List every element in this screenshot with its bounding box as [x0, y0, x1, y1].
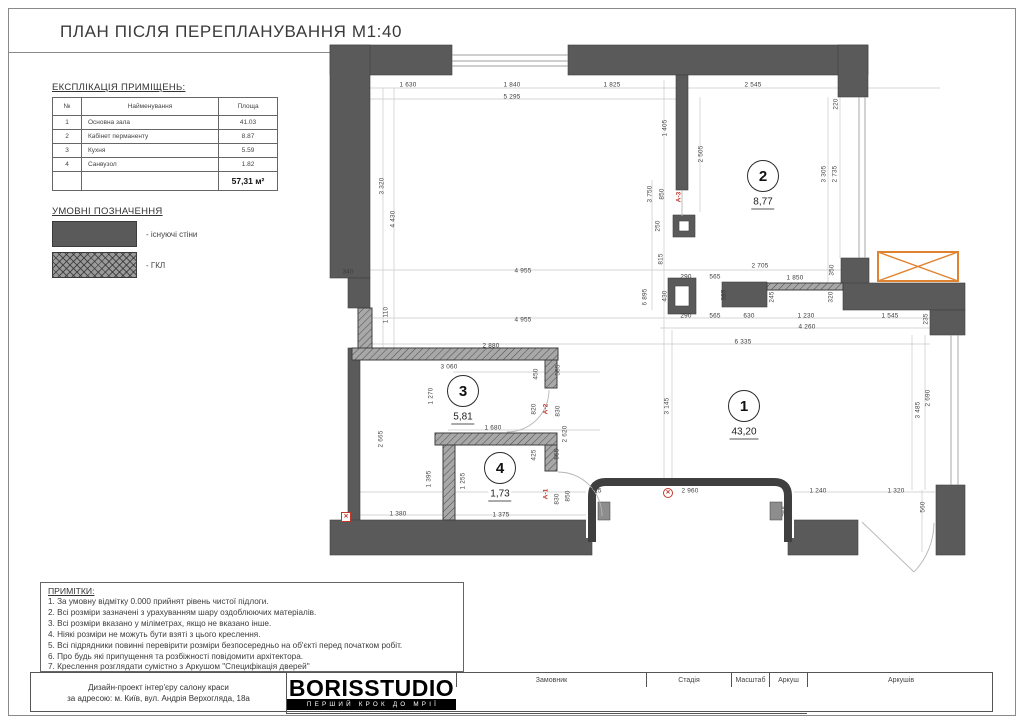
orange-cross-marker	[878, 252, 958, 281]
note-item: 2. Всі розміри зазначені з урахуванням ш…	[48, 608, 456, 619]
logo-text: BORISSTUDIO	[289, 677, 454, 699]
note-item: 5. Всі підрядники повинні перевірити роз…	[48, 641, 456, 652]
table-row: 3Кухня5.59	[53, 144, 278, 158]
sheet-label: Аркуш	[769, 673, 807, 687]
title-block: Дизайн-проект інтер'єру салону краси за …	[30, 672, 993, 712]
column-header-no: №	[53, 98, 82, 116]
note-item: 1. За умовну відмітку 0.000 прийнят ріве…	[48, 597, 456, 608]
note-item: 3. Всі розміри вказано у міліметрах, якщ…	[48, 619, 456, 630]
explication-heading: ЕКСПЛІКАЦІЯ ПРИМІЩЕНЬ:	[52, 82, 186, 93]
table-row: 1Основна зала41.03	[53, 116, 278, 130]
notes-heading: ПРИМІТКИ:	[48, 586, 456, 596]
total-area-value: 57,31 м²	[219, 172, 278, 191]
legend-heading: УМОВНІ ПОЗНАЧЕННЯ	[52, 206, 163, 217]
logo-tagline: ПЕРШИЙ КРОК ДО МРІЇ	[286, 699, 456, 710]
legend-swatch-gkl	[52, 252, 137, 278]
sheets-label: Аркушів	[807, 673, 994, 687]
table-total-row: 57,31 м²	[53, 172, 278, 191]
drawing-sheet: ПЛАН ПІСЛЯ ПЕРЕПЛАНУВАННЯ М1:40	[0, 0, 1024, 724]
customer-value: Головчик Ігор Олексійович	[286, 713, 456, 714]
scale-label: Масштаб	[731, 673, 769, 687]
logo: BORISSTUDIO ПЕРШИЙ КРОК ДО МРІЇ	[286, 673, 456, 713]
column-header-name: Найменування	[82, 98, 219, 116]
legend-label-existing-walls: - існуючі стіни	[146, 230, 197, 239]
note-item: 4. Ніякі розміри не можуть бути взяті з …	[48, 630, 456, 641]
customer-label: Замовник	[456, 673, 646, 687]
table-row: 2Кабінет перманенту8.87	[53, 130, 278, 144]
legend-swatch-existing-walls	[52, 221, 137, 247]
explication-table: № Найменування Площа 1Основна зала41.032…	[52, 97, 278, 191]
stage-label: Стадія	[646, 673, 731, 687]
notes-list: 1. За умовну відмітку 0.000 прийнят ріве…	[48, 597, 456, 673]
bay-window	[586, 480, 794, 542]
scale-value: 1:40	[646, 713, 731, 714]
legend-label-gkl: - ГКЛ	[146, 261, 165, 270]
sheets-value: 40	[769, 713, 807, 714]
column-header-area: Площа	[219, 98, 278, 116]
project-description: Дизайн-проект інтер'єру салону краси за …	[31, 673, 286, 713]
stage-value: ПЛАН ПІСЛЯ ПЕРЕПЛАНУВАННЯ	[456, 713, 646, 714]
notes-box: ПРИМІТКИ: 1. За умовну відмітку 0.000 пр…	[40, 582, 464, 672]
sheet-value: 18	[731, 713, 769, 714]
table-row: 4Санвузол1.82	[53, 158, 278, 172]
note-item: 6. Про будь які припущення та розбіжност…	[48, 652, 456, 663]
